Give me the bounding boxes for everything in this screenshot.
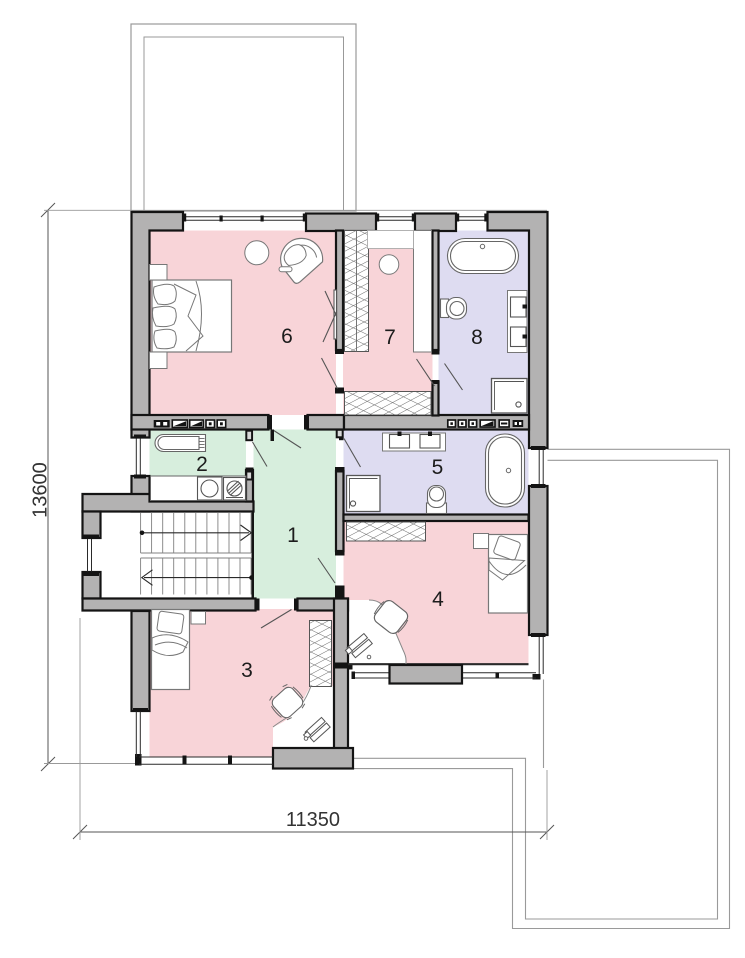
svg-text:4: 4 bbox=[432, 588, 444, 611]
svg-text:3: 3 bbox=[241, 659, 253, 682]
svg-text:6: 6 bbox=[281, 325, 293, 348]
svg-text:2: 2 bbox=[196, 453, 208, 476]
svg-text:7: 7 bbox=[384, 326, 396, 349]
svg-text:11350: 11350 bbox=[286, 809, 340, 831]
svg-text:13600: 13600 bbox=[29, 462, 51, 518]
svg-text:5: 5 bbox=[432, 456, 444, 479]
svg-text:8: 8 bbox=[471, 326, 483, 349]
svg-text:1: 1 bbox=[287, 524, 299, 547]
